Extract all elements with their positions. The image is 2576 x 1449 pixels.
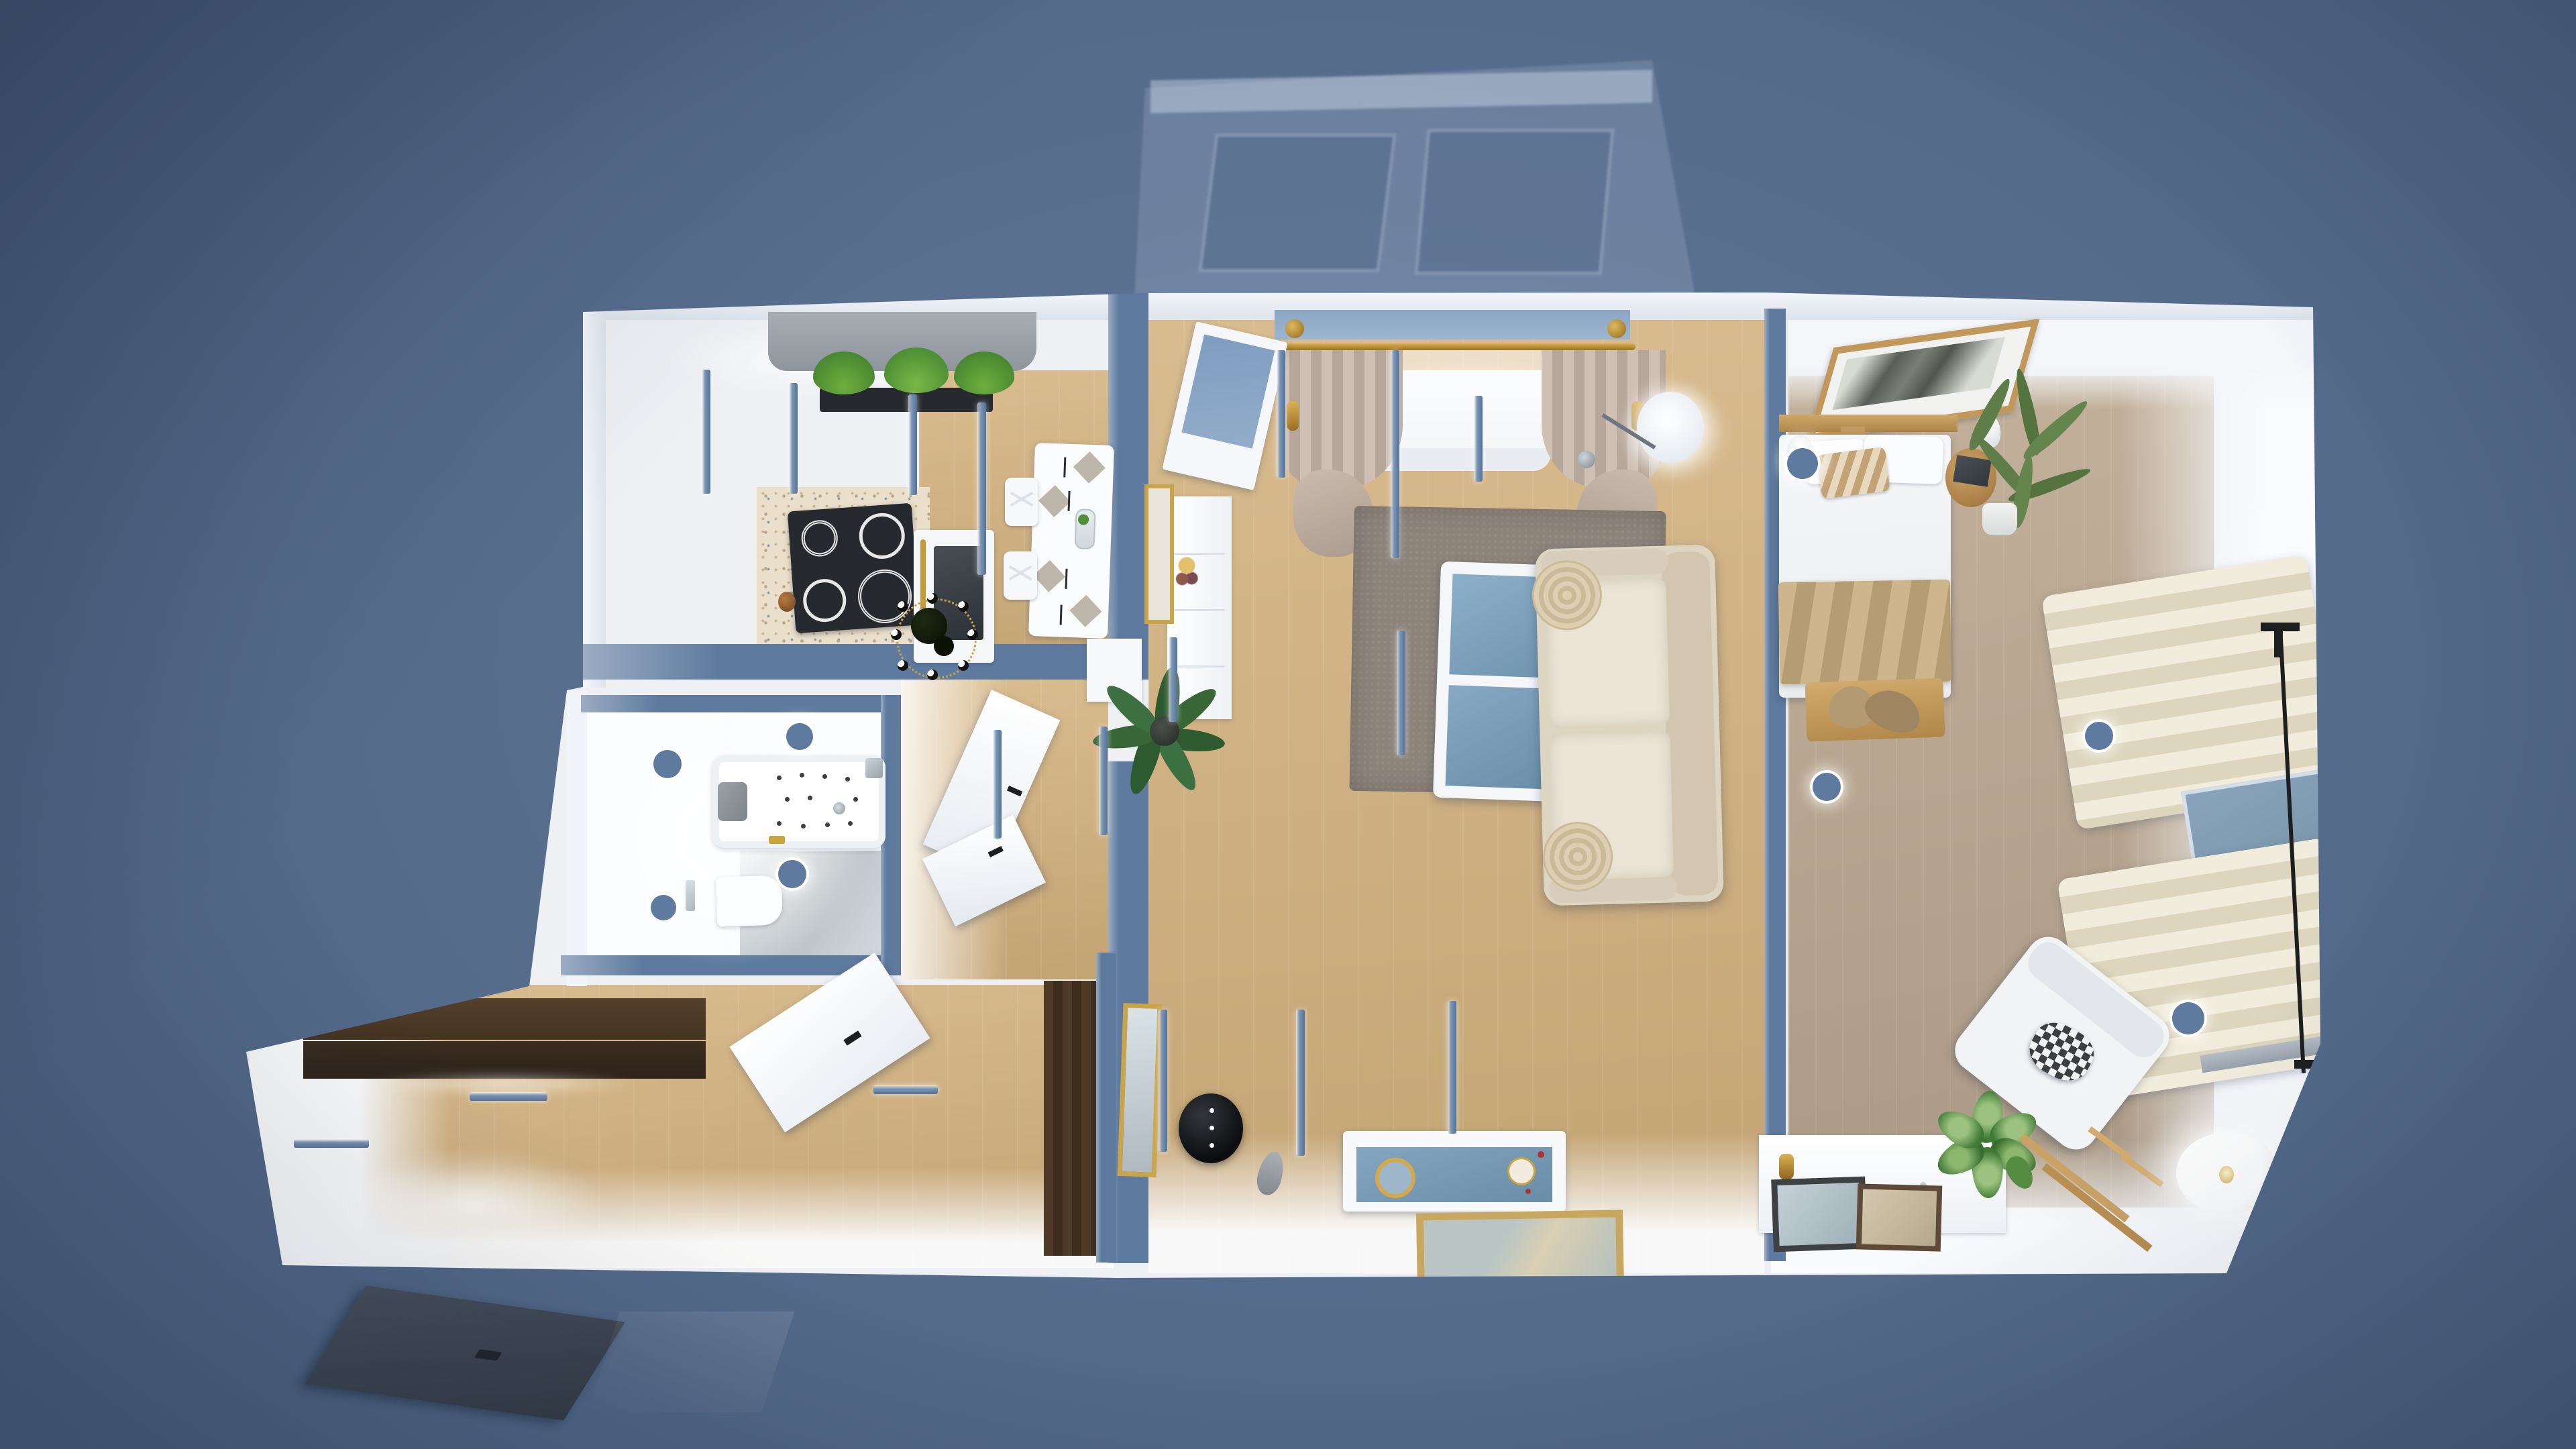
toilet[interactable] — [716, 875, 784, 926]
leaning-frame[interactable] — [1856, 1183, 1943, 1251]
bulb — [891, 629, 902, 640]
cabinet-handle — [83, 55, 165, 95]
chandelier-disc — [934, 636, 954, 656]
wall-top-strip — [1391, 350, 1399, 558]
entrance-door[interactable] — [305, 1286, 625, 1421]
curtain-holdback — [1287, 401, 1299, 431]
wall-top-strip — [1099, 727, 1108, 835]
ceiling-spotlight — [2085, 722, 2113, 750]
bulb — [927, 669, 938, 680]
rod-medallion — [1607, 319, 1626, 338]
gold-vase — [1779, 1154, 1794, 1179]
bulb — [958, 601, 969, 612]
cutlery — [1060, 604, 1063, 625]
table-glass-pane — [1446, 685, 1554, 789]
wall-top-strip — [702, 370, 710, 494]
door-light-reflection — [588, 1311, 795, 1412]
tub-jet — [800, 773, 804, 777]
tub-jet — [808, 796, 812, 800]
wall-top-strip — [1397, 631, 1405, 755]
wall-top-strip — [993, 730, 1002, 839]
wall-top-strip — [1474, 396, 1483, 482]
tub-jet — [785, 797, 790, 802]
ceiling-spotlight — [2172, 1002, 2204, 1034]
rod-medallion — [1285, 319, 1304, 338]
wall-top-strip — [1277, 350, 1285, 478]
foot-bench[interactable] — [1805, 678, 1945, 741]
led-dot — [1210, 1143, 1214, 1148]
kitchen-upper-cabinets[interactable] — [0, 425, 262, 559]
plate — [1067, 592, 1105, 631]
leaning-mirror[interactable] — [1118, 1003, 1163, 1177]
wall-top-strip — [977, 402, 986, 575]
clothes-pile — [1860, 682, 1927, 739]
gold-round-mirror — [1375, 1158, 1415, 1198]
curtain-bracket — [2310, 1068, 2319, 1102]
wall-light-bar — [873, 1085, 938, 1094]
cutlery — [1063, 458, 1066, 478]
tub-jet — [848, 821, 853, 826]
wall-light-bar — [470, 1092, 547, 1101]
plate — [1071, 449, 1109, 487]
chandelier[interactable] — [892, 594, 981, 683]
bulb — [898, 601, 908, 612]
wall-top-strip — [1169, 637, 1177, 722]
cutlery — [1068, 491, 1071, 511]
wall-top-strip — [789, 383, 798, 494]
living-window-glass — [1275, 310, 1630, 339]
door-glass — [1181, 334, 1275, 448]
tub-plaque — [769, 836, 785, 844]
ceiling-spotlight — [651, 895, 676, 920]
cutlery — [1065, 569, 1067, 589]
leaning-frame[interactable] — [1771, 1177, 1868, 1252]
lamp-bulb — [2219, 1166, 2234, 1183]
kitchen-west-wall — [583, 312, 606, 688]
ceiling-spotlight — [786, 723, 813, 750]
ceiling-spotlight — [1813, 773, 1841, 801]
dining-chair[interactable] — [1004, 551, 1037, 600]
burner — [802, 578, 847, 623]
flower-specks — [1538, 1151, 1544, 1158]
sofa[interactable] — [1535, 545, 1724, 906]
door-handle — [843, 1030, 861, 1046]
black-side-table[interactable] — [1179, 1093, 1243, 1163]
kitchen-shaker-cabinet[interactable] — [0, 185, 154, 366]
burner — [857, 512, 906, 561]
tan-blanket — [1778, 580, 1952, 684]
wall-top-strip — [1448, 1001, 1456, 1134]
tub-jet — [845, 777, 850, 782]
led-dot — [1210, 1126, 1214, 1130]
cabinet-glass-front — [1356, 1147, 1552, 1202]
hall-tall-wardrobe[interactable] — [1044, 981, 1096, 1256]
hallway-glow — [282, 1127, 657, 1281]
led-dot — [1210, 1108, 1214, 1113]
bulb — [927, 593, 938, 604]
tub-jet — [801, 824, 806, 828]
tub-faucet — [865, 758, 883, 778]
balcony — [1134, 58, 1697, 311]
ceiling-spotlight — [1787, 448, 1818, 479]
floorplan-render — [0, 0, 2576, 1449]
kitchen-countertop[interactable] — [0, 350, 134, 432]
tub-drain — [833, 802, 845, 814]
refrigerator[interactable] — [0, 0, 134, 114]
ceiling-spotlight — [653, 750, 682, 778]
entrance-door-handle — [474, 1349, 502, 1361]
burner — [800, 519, 839, 558]
dining-table[interactable] — [1028, 443, 1114, 639]
tub-jet — [853, 797, 858, 802]
leaning-art-frame[interactable] — [1144, 484, 1174, 624]
bathtub[interactable] — [712, 755, 885, 848]
clock-face — [1509, 1159, 1534, 1183]
tub-jet — [825, 822, 830, 827]
tub-jet — [777, 821, 782, 826]
balcony-window-pane[interactable] — [1415, 129, 1615, 275]
floor-picture[interactable] — [1416, 1210, 1624, 1292]
wall-top-strip — [1159, 1010, 1167, 1152]
bulb — [967, 629, 978, 640]
display-cabinet[interactable] — [1343, 1131, 1566, 1212]
flush-plate[interactable] — [686, 880, 695, 911]
balcony-window-pane[interactable] — [1199, 133, 1397, 272]
bulb — [958, 660, 969, 671]
drawer-line — [1174, 553, 1225, 555]
floor-lamp[interactable] — [1637, 392, 1704, 463]
plant-pot — [1982, 503, 2017, 535]
copper-pot[interactable] — [778, 592, 796, 612]
olive-branch — [1964, 376, 2015, 453]
hall-wall-cabinet-upper[interactable] — [303, 998, 706, 1040]
tub-jet — [777, 775, 782, 780]
olive-plant[interactable] — [1962, 368, 2096, 569]
wall-sconce[interactable] — [1175, 555, 1198, 589]
drawer-line — [1174, 609, 1225, 611]
globe-floor-lamp[interactable] — [2176, 1132, 2278, 1214]
ceiling-spotlight — [778, 860, 806, 888]
wall-top-strip — [1296, 1010, 1305, 1156]
curtain-bracket — [2294, 1060, 2336, 1069]
door-handle — [988, 846, 1004, 857]
dining-chair[interactable] — [1005, 478, 1038, 526]
bulb — [898, 660, 908, 671]
floor-lamp-base — [1578, 451, 1595, 468]
tub-headrest — [718, 782, 747, 821]
wall-light-bar — [294, 1139, 369, 1148]
cabinet-handle — [125, 91, 207, 131]
kitchen-living-wall-top — [1108, 293, 1148, 680]
hall-living-wall-top — [1096, 953, 1116, 1263]
cabinet-handle — [43, 17, 125, 57]
kitchen-gray-unit[interactable] — [0, 114, 124, 193]
tub-jet — [822, 774, 827, 779]
wall-top-strip — [908, 394, 917, 495]
curtain-rod[interactable] — [1270, 343, 1635, 350]
door-handle — [1007, 786, 1022, 796]
flower-specks — [1525, 1189, 1531, 1194]
